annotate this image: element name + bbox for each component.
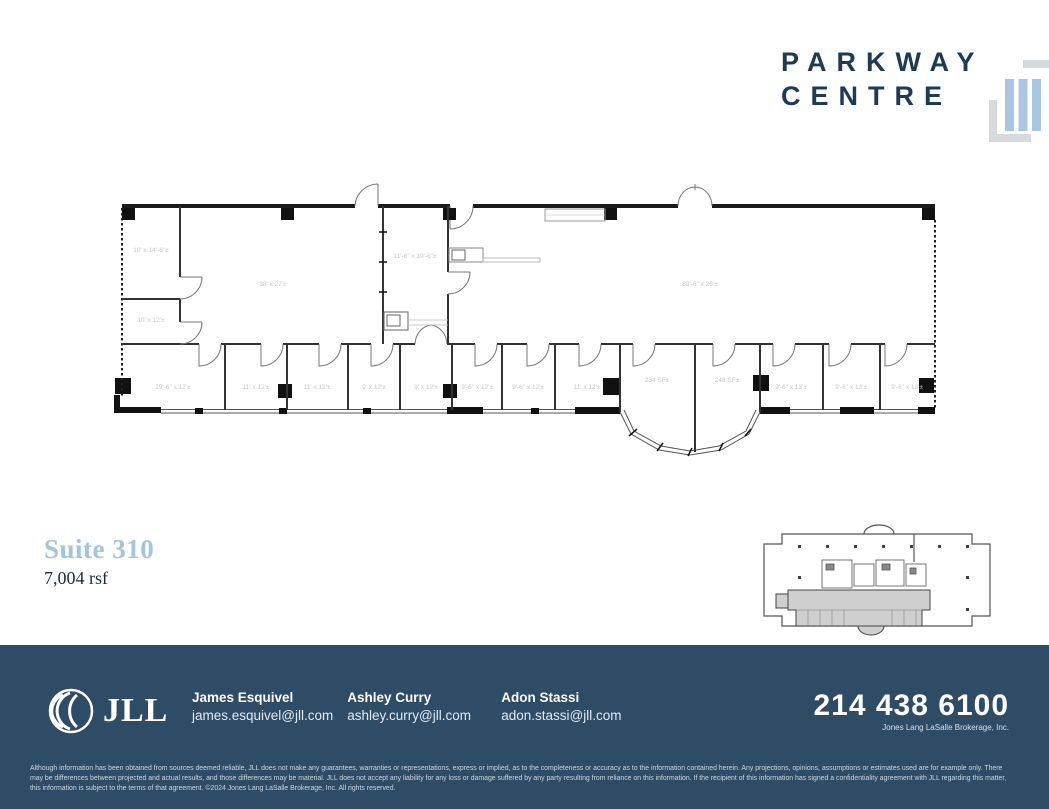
door-swings-offices xyxy=(199,325,907,366)
floor-plan-drawing: 10' x 14'-6"± 10' x 12'± 38' x 27'± 11'-… xyxy=(113,182,945,469)
room-label: 38' x 27'± xyxy=(259,281,287,288)
brand-line1: PARKWAY xyxy=(781,46,985,80)
room-label: 9'-6" x 12'± xyxy=(461,384,493,391)
room-label: 89'-6" x 26'± xyxy=(682,281,718,288)
room-label: 9'-6" x 13'± xyxy=(891,384,923,391)
office-partitions xyxy=(225,344,880,452)
contact-email-link[interactable]: ashley.curry@jll.com xyxy=(347,707,487,725)
room-label: 9'-6" x 12'± xyxy=(512,384,544,391)
room-label: 9' x 12'± xyxy=(362,384,386,391)
contact-email-link[interactable]: james.esquivel@jll.com xyxy=(192,707,333,725)
kitchen-room xyxy=(379,206,605,344)
room-labels: 10' x 14'-6"± 10' x 12'± 38' x 27'± 11'-… xyxy=(133,247,923,391)
parkway-centre-logo: PARKWAY CENTRE xyxy=(781,46,1049,149)
structural-columns xyxy=(115,208,935,398)
room-label: 11' x 12'± xyxy=(304,384,331,391)
brand-wordmark: PARKWAY CENTRE xyxy=(781,46,985,114)
bay-window xyxy=(620,410,760,456)
flyer-page: { "brand": { "line1": "PARKWAY", "line2"… xyxy=(0,0,1049,809)
jll-wordmark: JLL xyxy=(103,692,168,730)
contact-card: Ashley Curry ashley.curry@jll.com xyxy=(347,689,487,724)
room-label: 10' x 14'-6"± xyxy=(133,247,169,254)
brand-line2: CENTRE xyxy=(781,80,985,114)
room-label: 234 SF± xyxy=(645,377,670,384)
building-core xyxy=(822,560,926,588)
phone-number: 214 438 6100 xyxy=(813,691,1009,721)
contact-name: Adon Stassi xyxy=(501,689,641,707)
room-label: 9' x 12'± xyxy=(414,384,438,391)
room-label: 11'-6" x 19'-6"± xyxy=(393,253,436,260)
room-label: 11' x 12'± xyxy=(243,384,270,391)
suite-title: Suite 310 xyxy=(44,534,154,565)
jll-logo: JLL xyxy=(45,685,180,737)
brokerage-name: Jones Lang LaSalle Brokerage, Inc. xyxy=(813,723,1009,732)
room-label: 19'-6" x 12'± xyxy=(155,384,191,391)
footer-band: JLL James Esquivel james.esquivel@jll.co… xyxy=(0,645,1049,809)
room-label: 11' x 12'± xyxy=(574,384,601,391)
contact-name: James Esquivel xyxy=(192,689,333,707)
suite-area: 7,004 rsf xyxy=(44,568,154,589)
roman-numeral-III-icon xyxy=(985,57,1049,149)
corner-wall xyxy=(117,395,161,410)
suite-info: Suite 310 7,004 rsf xyxy=(44,534,154,589)
room-label: 10' x 12'± xyxy=(137,317,165,324)
room-label: 9'-6" x 13'± xyxy=(775,384,807,391)
key-plan xyxy=(752,520,998,642)
footer-contacts-row: JLL James Esquivel james.esquivel@jll.co… xyxy=(45,689,655,737)
phone-block: 214 438 6100 Jones Lang LaSalle Brokerag… xyxy=(813,691,1009,732)
highlighted-suite xyxy=(776,590,930,635)
room-label: 248 SF± xyxy=(715,377,740,384)
contact-card: Adon Stassi adon.stassi@jll.com xyxy=(501,689,641,724)
jll-circle-mark-icon xyxy=(45,685,97,737)
contact-name: Ashley Curry xyxy=(347,689,487,707)
legal-disclaimer: Although information has been obtained f… xyxy=(30,764,1015,793)
contact-email-link[interactable]: adon.stassi@jll.com xyxy=(501,707,641,725)
contact-card: James Esquivel james.esquivel@jll.com xyxy=(192,689,333,724)
room-label: 9'-6" x 13'± xyxy=(835,384,867,391)
exterior-window-wall xyxy=(161,407,935,414)
